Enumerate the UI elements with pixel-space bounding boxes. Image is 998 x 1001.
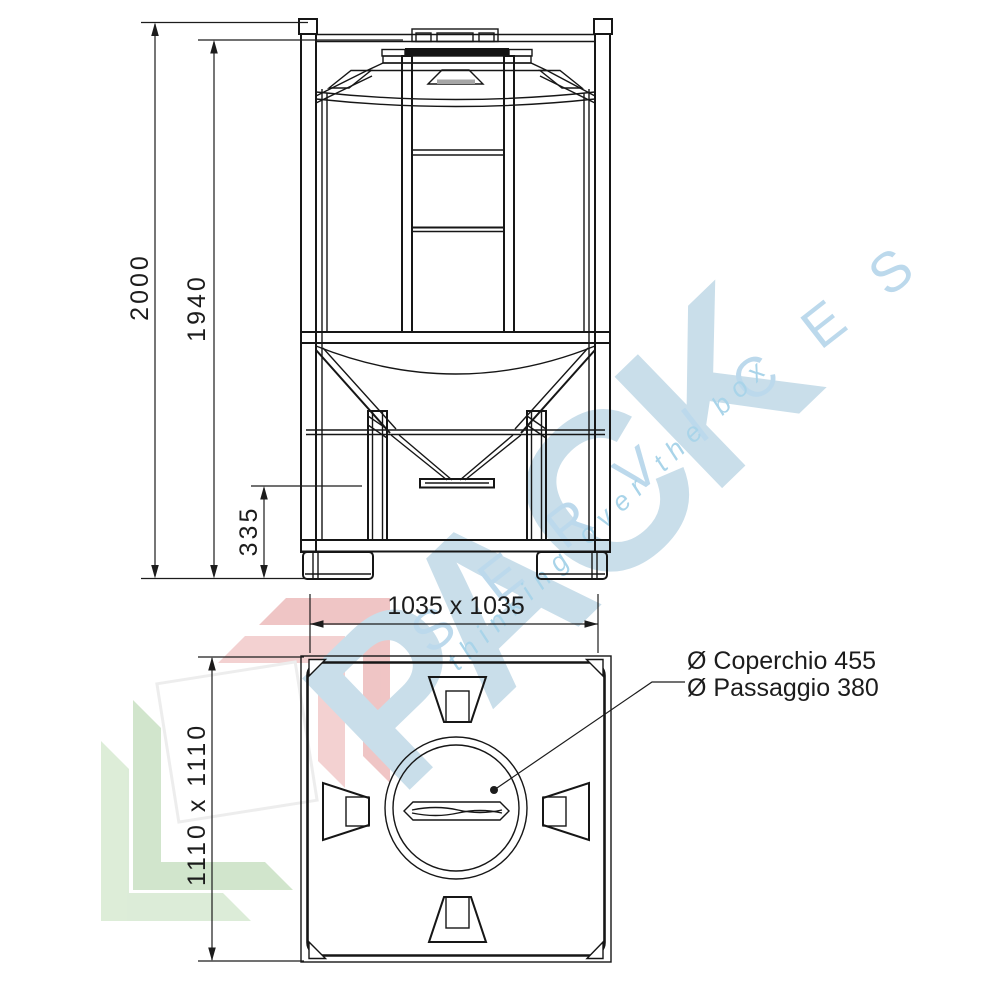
dim-outlet-height-label: 335	[234, 496, 264, 566]
dim-overall-height-label: 2000	[125, 242, 155, 332]
right-corner-post	[595, 34, 610, 552]
left-post-cap	[299, 19, 317, 34]
lid-passage-diameter-label: Ø Passaggio 380	[687, 675, 879, 702]
lid-circle-inner	[393, 745, 519, 871]
front-view	[299, 19, 612, 579]
dim-plan-external-label: 1110 x 1110	[182, 726, 212, 886]
center-column-left	[402, 56, 412, 332]
plan-view	[301, 656, 685, 962]
hopper-bowl-curve	[316, 346, 595, 374]
lid-cover-diameter-label: Ø Coperchio 455	[687, 648, 879, 675]
lid-labels: Ø Coperchio 455 Ø Passaggio 380	[687, 648, 879, 702]
base-rail	[301, 540, 610, 552]
right-post-cap	[594, 19, 612, 34]
lid-assembly	[367, 29, 547, 71]
technical-drawing	[0, 0, 998, 1001]
left-corner-post	[301, 34, 316, 552]
center-column-right	[504, 56, 514, 332]
leader-line	[494, 682, 685, 790]
dim-plan-internal-label: 1035 x 1035	[376, 591, 536, 617]
technical-drawing-page: PACK SERVICES thinking over the box	[0, 0, 998, 1001]
dim-frame-height-label: 1940	[182, 263, 212, 353]
